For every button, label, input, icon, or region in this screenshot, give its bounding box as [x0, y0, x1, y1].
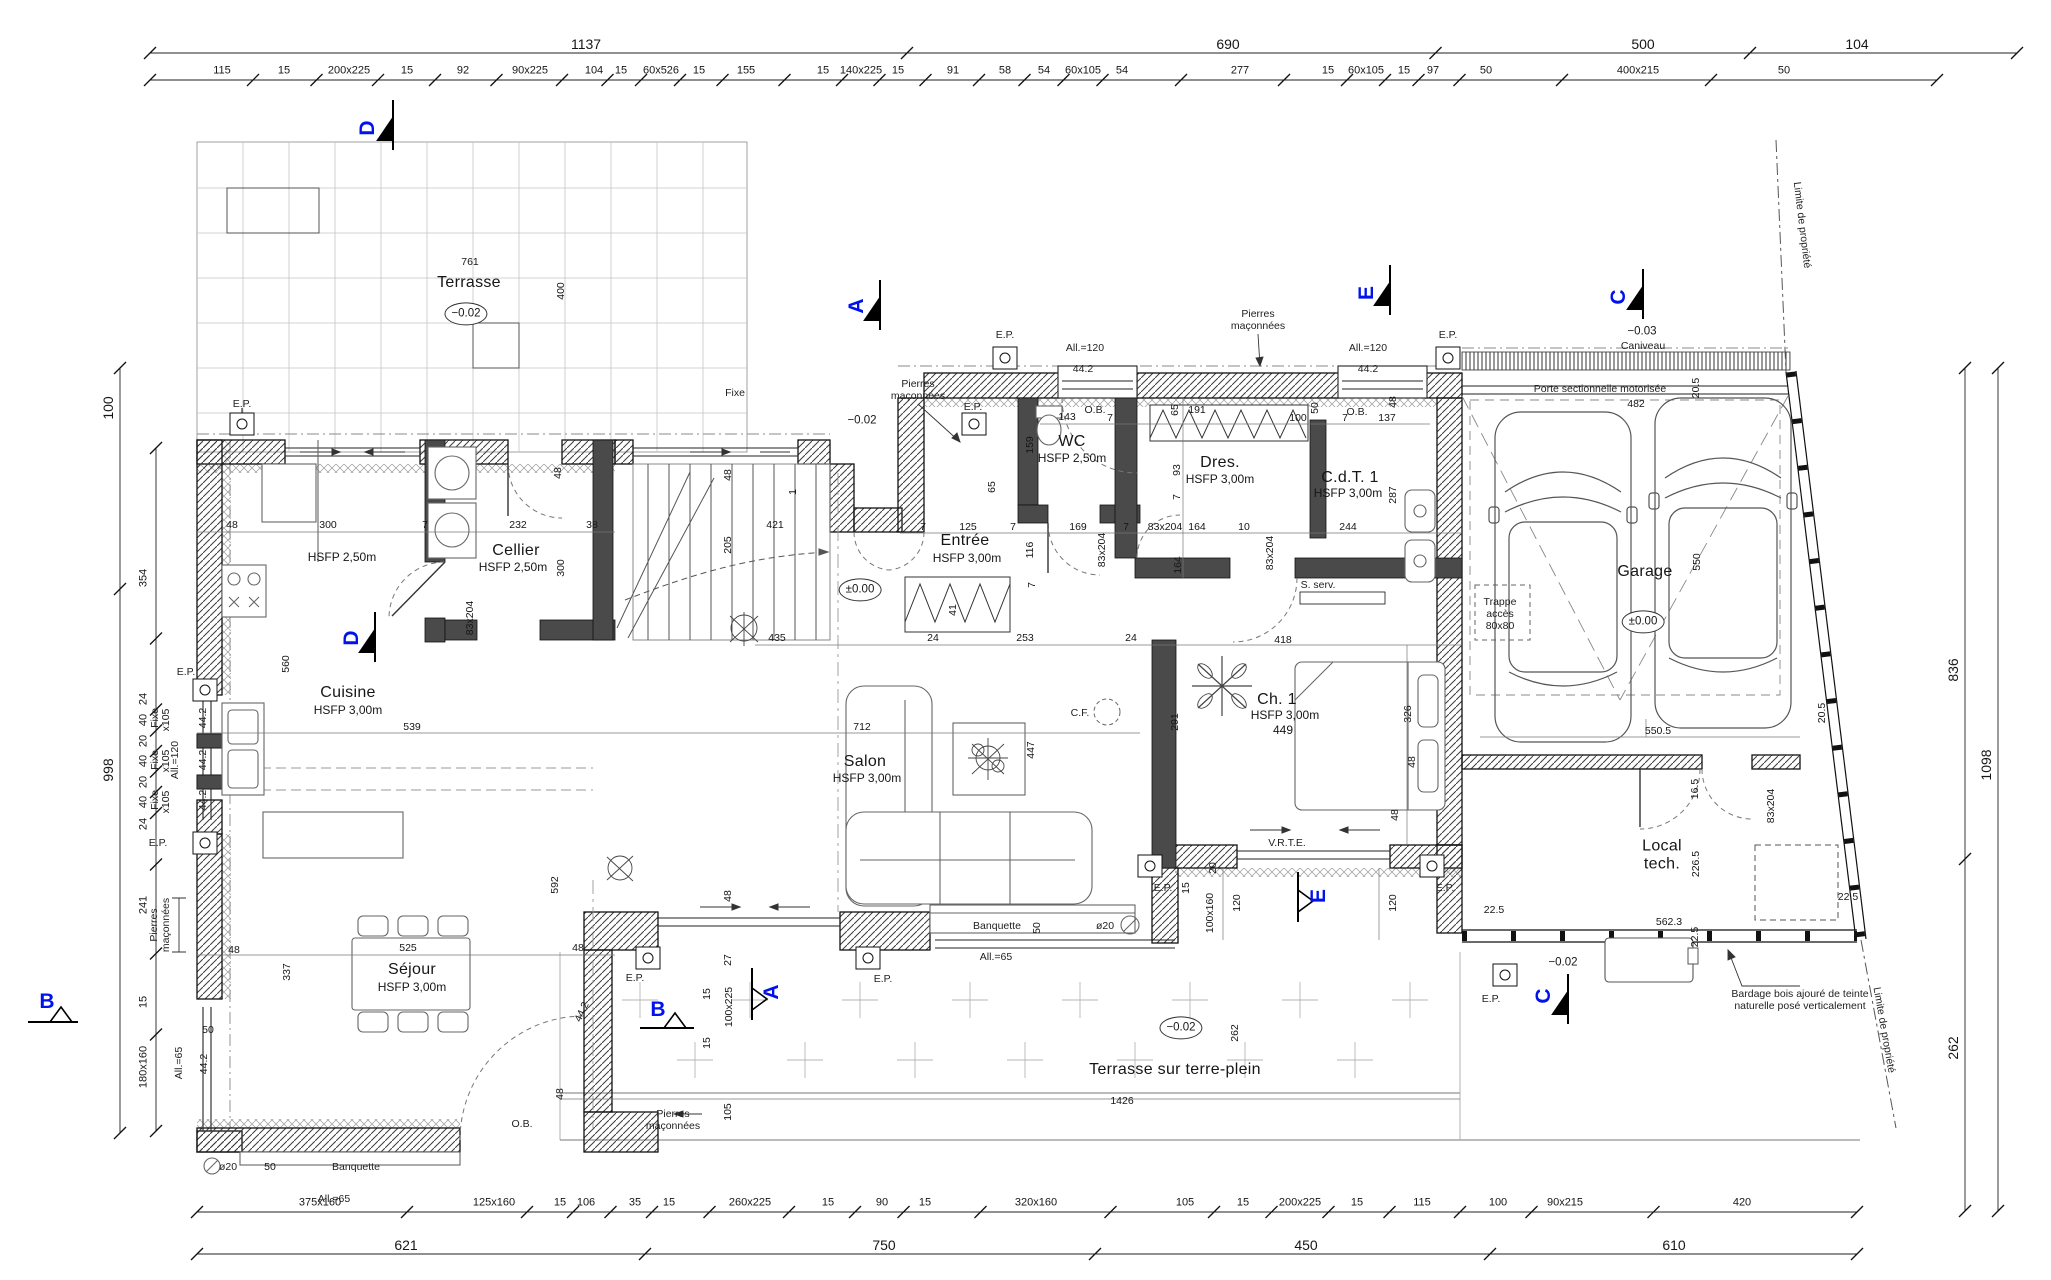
- cf-symbol: [1094, 699, 1120, 725]
- floor-plan-sheet: TerrasseCuisineCellierEntréeWCDres.C.d.T…: [0, 0, 2051, 1280]
- property-boundary: [1776, 140, 1896, 1128]
- garage-dashes: [1462, 396, 1788, 700]
- dimension-chains: [114, 47, 2023, 1260]
- top-terrace-grid: [197, 142, 747, 452]
- caniveau: [1462, 352, 1790, 370]
- car-1: [1489, 412, 1637, 742]
- pac-units: [1605, 845, 1838, 982]
- trappe-acces: [1475, 585, 1530, 640]
- car-2: [1649, 398, 1797, 728]
- ceiling-lines: [231, 473, 838, 1128]
- stairs: [617, 464, 830, 640]
- plan-linework: [0, 0, 2051, 1280]
